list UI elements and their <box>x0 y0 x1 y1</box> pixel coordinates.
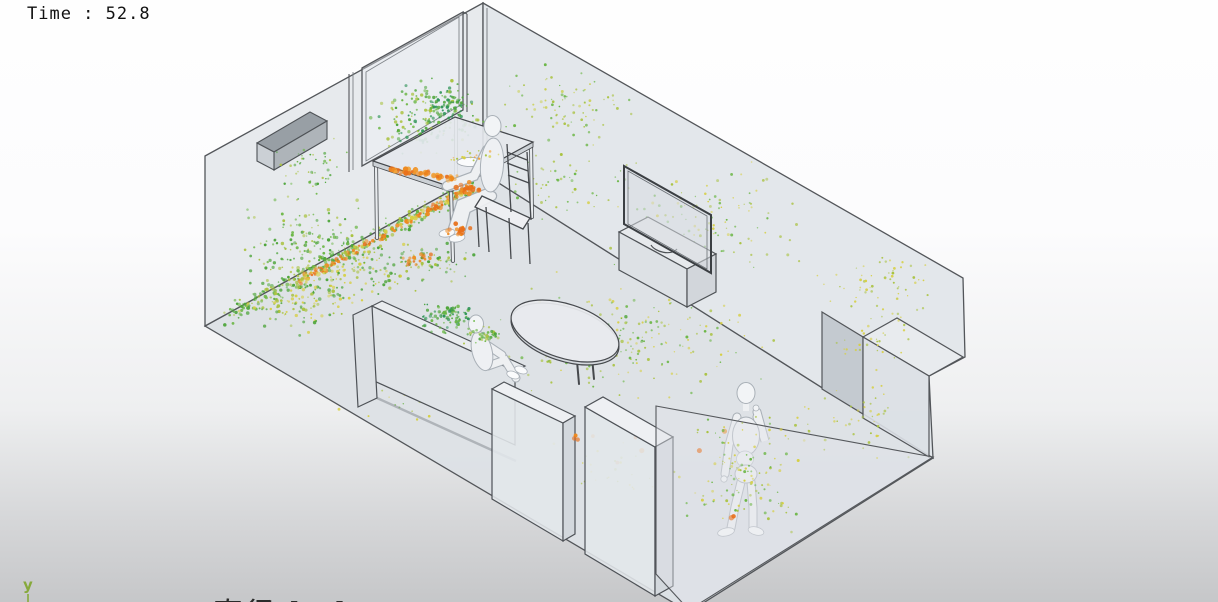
time-label: Time : 52.8 <box>27 4 151 24</box>
sofa-arm-panel <box>353 306 377 407</box>
scene-3d <box>0 0 1218 602</box>
pillar-side-face <box>563 416 575 541</box>
axis-y-label: y <box>23 576 33 594</box>
head <box>737 383 755 404</box>
head <box>484 116 501 137</box>
hand <box>753 405 759 411</box>
colorbar-title: 直径 [m] <box>213 589 347 602</box>
simulation-viewport: Time : 52.8 y 直径 [m] <box>0 0 1218 602</box>
